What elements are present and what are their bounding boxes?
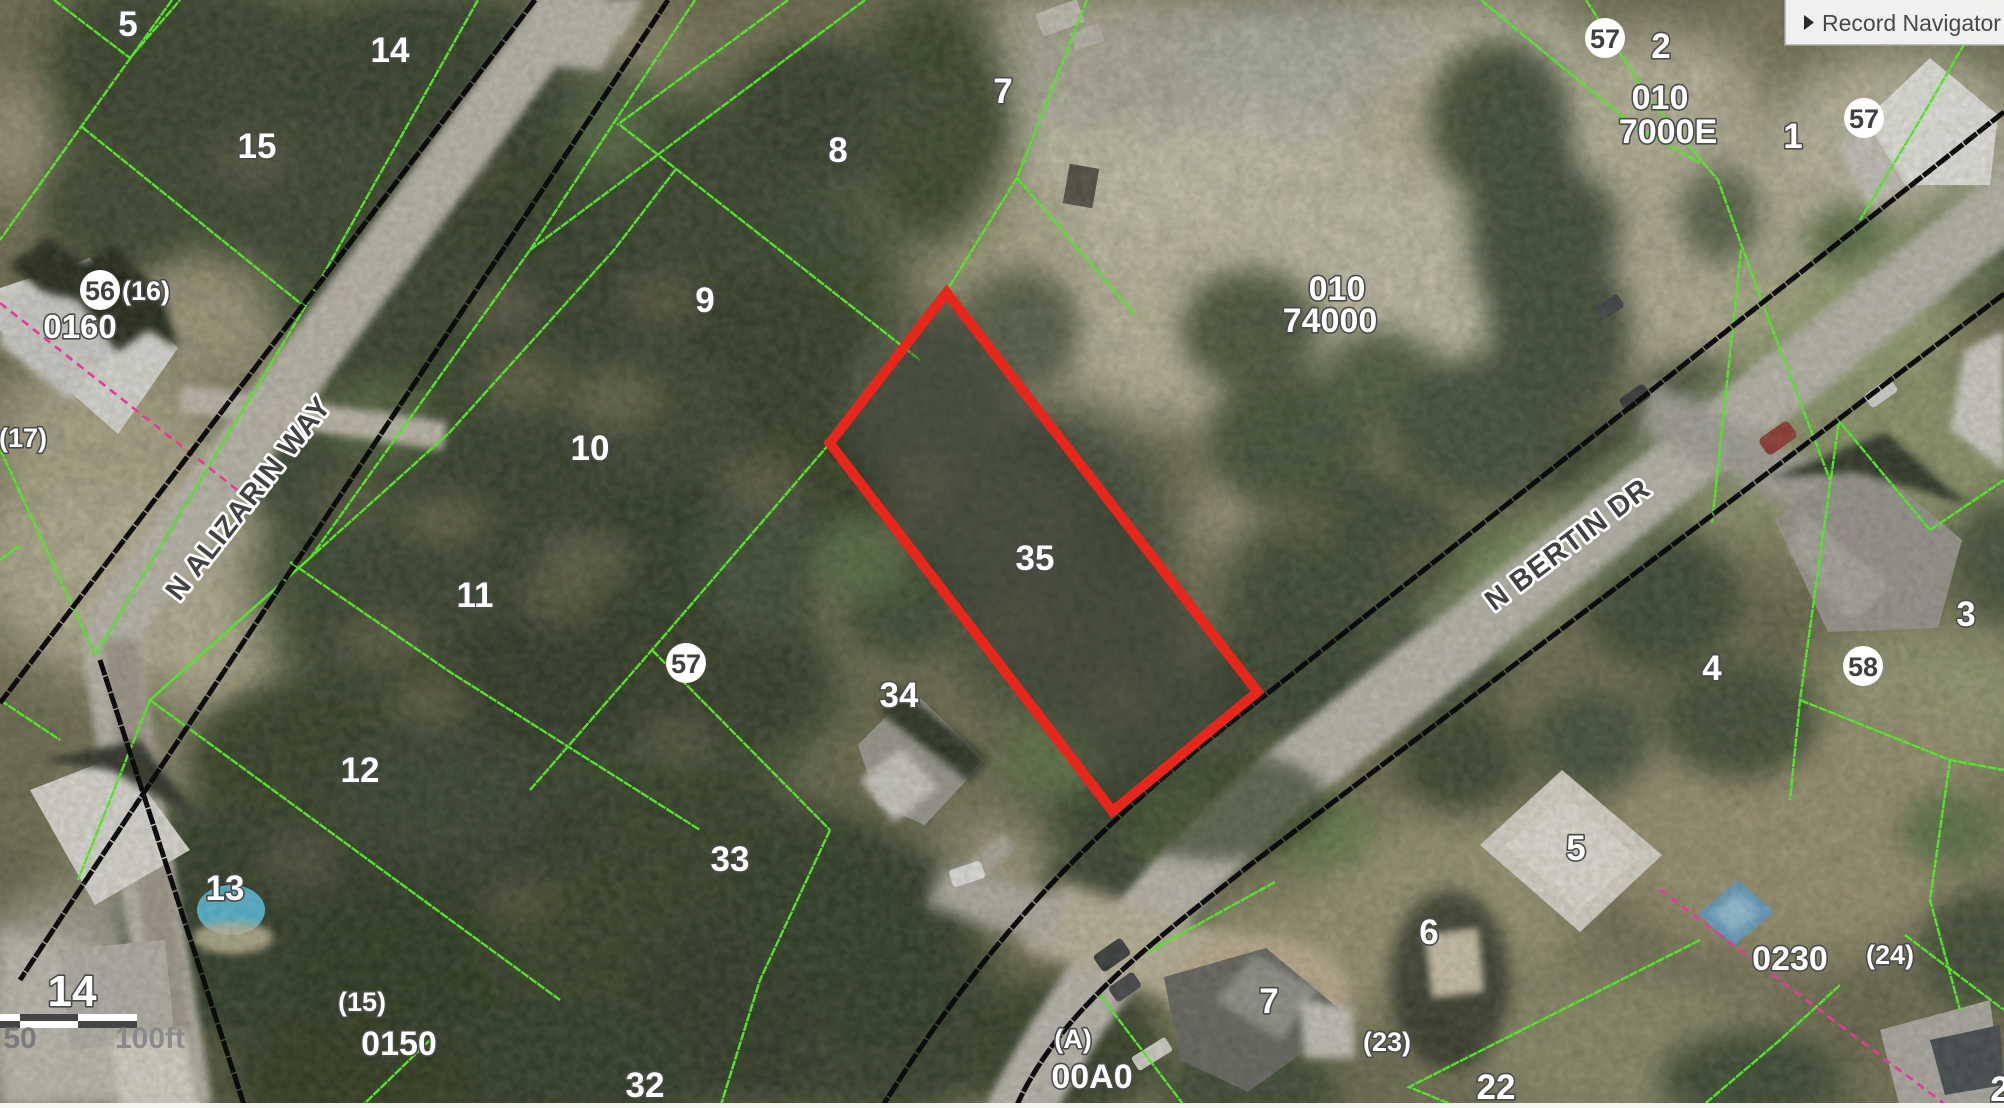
svg-text:57: 57: [671, 649, 701, 679]
svg-text:(23): (23): [1363, 1027, 1411, 1057]
svg-text:14: 14: [48, 967, 97, 1016]
svg-text:57: 57: [1590, 24, 1620, 54]
svg-text:0230: 0230: [1752, 940, 1828, 978]
svg-text:(24): (24): [1866, 940, 1914, 970]
svg-text:13: 13: [206, 869, 245, 908]
svg-text:7000E: 7000E: [1619, 113, 1717, 151]
svg-text:00A0: 00A0: [1051, 1058, 1132, 1096]
svg-text:7: 7: [993, 72, 1012, 111]
svg-text:2: 2: [1651, 27, 1670, 66]
svg-text:6: 6: [1419, 913, 1438, 952]
svg-text:12: 12: [341, 751, 380, 790]
svg-text:7: 7: [1259, 982, 1278, 1021]
svg-text:11: 11: [457, 576, 494, 615]
svg-text:56: 56: [85, 276, 115, 306]
svg-text:34: 34: [880, 676, 919, 715]
svg-text:5: 5: [1566, 829, 1585, 868]
svg-text:(15): (15): [338, 987, 386, 1017]
svg-text:5: 5: [118, 5, 137, 44]
svg-text:010: 010: [1632, 79, 1689, 117]
svg-text:100ft: 100ft: [115, 1022, 185, 1055]
svg-text:10: 10: [571, 429, 610, 468]
svg-text:15: 15: [238, 127, 277, 166]
svg-text:58: 58: [1848, 652, 1878, 682]
svg-text:(17): (17): [0, 423, 47, 453]
svg-text:8: 8: [828, 131, 847, 170]
svg-text:4: 4: [1702, 649, 1722, 688]
svg-text:74000: 74000: [1283, 302, 1378, 340]
svg-text:Record Navigator: Record Navigator: [1822, 10, 2001, 36]
svg-text:14: 14: [371, 31, 410, 70]
svg-text:0150: 0150: [361, 1025, 437, 1063]
svg-text:(A): (A): [1054, 1024, 1091, 1054]
svg-text:33: 33: [711, 840, 750, 879]
svg-text:0160: 0160: [43, 308, 116, 345]
svg-text:(16): (16): [122, 276, 170, 306]
svg-text:35: 35: [1016, 539, 1055, 578]
svg-text:1: 1: [1783, 117, 1802, 156]
svg-text:9: 9: [695, 281, 714, 320]
svg-text:50: 50: [3, 1022, 36, 1055]
svg-text:57: 57: [1849, 104, 1879, 134]
svg-text:2: 2: [1990, 1070, 2004, 1108]
svg-text:3: 3: [1956, 595, 1975, 634]
svg-text:22: 22: [1477, 1068, 1516, 1107]
svg-text:32: 32: [626, 1066, 665, 1105]
